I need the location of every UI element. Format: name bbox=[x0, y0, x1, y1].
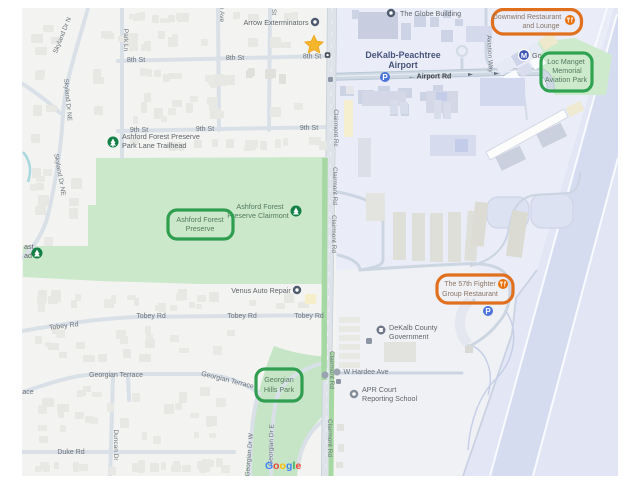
svg-text:W Hardee Ave: W Hardee Ave bbox=[343, 369, 388, 376]
svg-text:8th St: 8th St bbox=[127, 57, 145, 64]
svg-text:n Ave: n Ave bbox=[218, 6, 225, 23]
svg-text:Clairmont Rc: Clairmont Rc bbox=[332, 109, 339, 147]
svg-text:ace: ace bbox=[22, 389, 33, 396]
svg-text:Memorial: Memorial bbox=[552, 66, 582, 75]
svg-text:Government: Government bbox=[389, 332, 429, 341]
svg-text:Reporting School: Reporting School bbox=[362, 394, 418, 403]
svg-text:P: P bbox=[382, 73, 388, 82]
svg-text:Tobey Rd: Tobey Rd bbox=[136, 313, 166, 320]
svg-text:and Lounge: and Lounge bbox=[523, 23, 560, 30]
svg-text:Preserve Clairmont: Preserve Clairmont bbox=[227, 211, 289, 220]
svg-text:Downwind Restaurant: Downwind Restaurant bbox=[493, 14, 562, 21]
svg-text:8th St: 8th St bbox=[303, 54, 321, 61]
svg-text:Venus Auto Repair: Venus Auto Repair bbox=[231, 286, 291, 295]
svg-text:Clairmont Rd: Clairmont Rd bbox=[328, 351, 335, 389]
svg-text:Duncan Dr: Duncan Dr bbox=[112, 429, 119, 461]
svg-text:g: g bbox=[286, 460, 292, 472]
svg-text:o: o bbox=[280, 460, 286, 472]
svg-text:G: G bbox=[265, 460, 273, 472]
svg-text:Loc Manget: Loc Manget bbox=[547, 57, 585, 66]
svg-text:APR Court: APR Court bbox=[362, 385, 396, 394]
svg-text:DeKalb County: DeKalb County bbox=[389, 323, 438, 332]
svg-text:Hills Park: Hills Park bbox=[264, 385, 295, 394]
svg-text:Duke Rd: Duke Rd bbox=[57, 449, 84, 456]
svg-text:Clairmont Rd: Clairmont Rd bbox=[331, 167, 338, 205]
svg-text:ad: ad bbox=[24, 251, 32, 260]
svg-text:Aviation Park: Aviation Park bbox=[545, 75, 588, 84]
svg-text:o: o bbox=[273, 460, 279, 472]
svg-text:DeKalb-Peachtree: DeKalb-Peachtree bbox=[365, 50, 440, 60]
svg-text:St: St bbox=[270, 9, 277, 15]
svg-text:Park Lane Trailhead: Park Lane Trailhead bbox=[122, 141, 186, 150]
svg-text:Park Ln: Park Ln bbox=[122, 29, 129, 52]
svg-text:Ashford Forest Preserve: Ashford Forest Preserve bbox=[122, 132, 200, 141]
svg-text:P: P bbox=[485, 307, 491, 316]
svg-text:e: e bbox=[296, 460, 302, 472]
svg-text:Arrow Exterminators: Arrow Exterminators bbox=[243, 18, 309, 27]
svg-text:The Globe Building: The Globe Building bbox=[400, 9, 461, 18]
svg-text:Ashford Forest: Ashford Forest bbox=[236, 202, 283, 211]
svg-text:9th St: 9th St bbox=[300, 125, 318, 132]
svg-text:8th St: 8th St bbox=[226, 55, 244, 62]
svg-text:Tobey Rd: Tobey Rd bbox=[294, 313, 324, 320]
svg-text:Ashford Forest: Ashford Forest bbox=[176, 215, 223, 224]
svg-text:Clairmont Rd: Clairmont Rd bbox=[330, 215, 337, 253]
svg-text:Georgian: Georgian bbox=[264, 375, 294, 384]
svg-text:Airport: Airport bbox=[388, 60, 417, 70]
svg-text:← Airport Rd: ← Airport Rd bbox=[408, 74, 451, 81]
svg-text:Group Restaurant: Group Restaurant bbox=[442, 291, 498, 298]
svg-text:M: M bbox=[521, 51, 527, 60]
svg-text:Tobey Rd: Tobey Rd bbox=[227, 313, 257, 320]
svg-text:The 57th Fighter: The 57th Fighter bbox=[444, 281, 496, 288]
svg-text:Clairmont Rd: Clairmont Rd bbox=[326, 419, 333, 457]
svg-text:Preserve: Preserve bbox=[186, 224, 215, 233]
svg-text:Georgian Terrace: Georgian Terrace bbox=[89, 372, 143, 379]
svg-text:ast: ast bbox=[24, 242, 34, 251]
